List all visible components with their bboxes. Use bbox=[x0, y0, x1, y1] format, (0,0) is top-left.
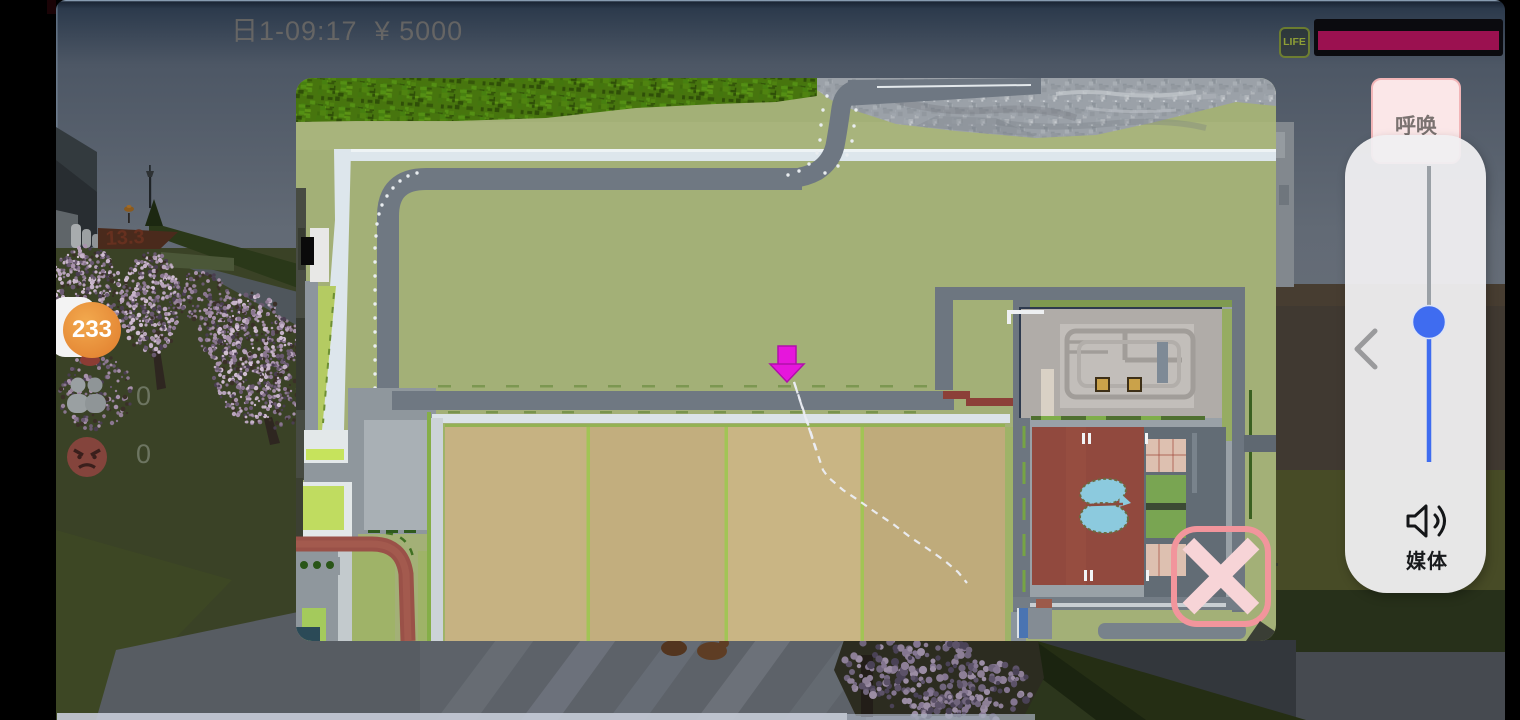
svg-text:13.3: 13.3 bbox=[105, 226, 145, 250]
